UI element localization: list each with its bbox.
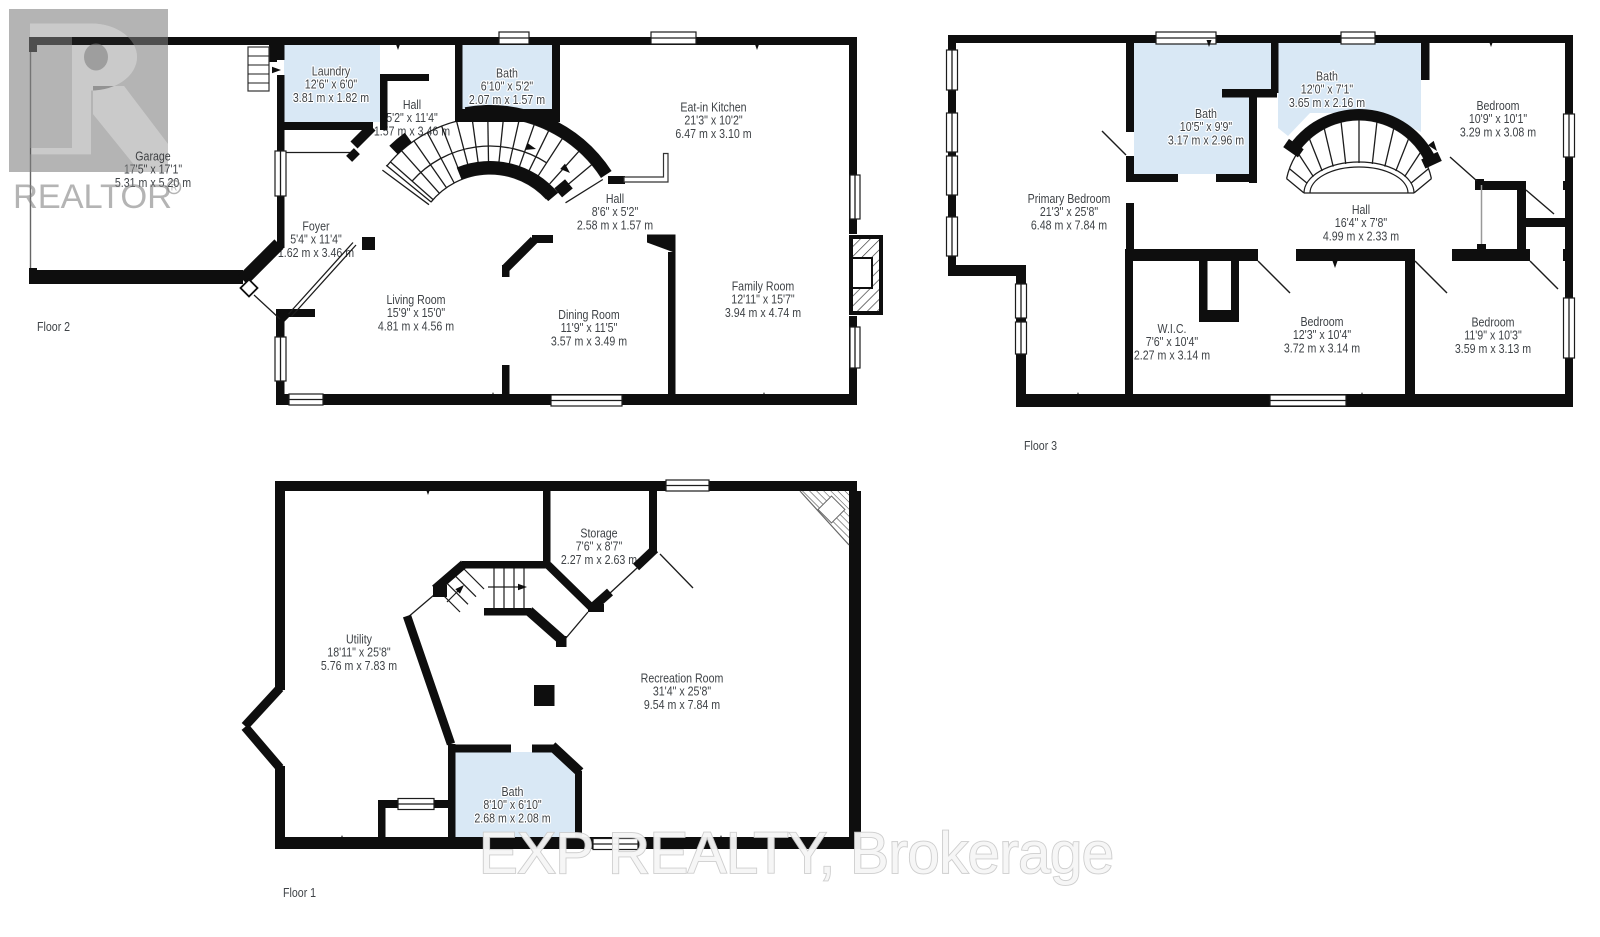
svg-text:R: R	[171, 183, 178, 193]
svg-text:Living Room15'9" x 15'0"4.81 m: Living Room15'9" x 15'0"4.81 m x 4.56 m	[378, 293, 454, 334]
svg-text:Floor 2: Floor 2	[37, 320, 70, 334]
svg-text:Floor 1: Floor 1	[283, 886, 316, 900]
svg-text:Primary Bedroom21'3" x 25'8"6.: Primary Bedroom21'3" x 25'8"6.48 m x 7.8…	[1028, 192, 1111, 233]
svg-text:Floor 3: Floor 3	[1024, 439, 1057, 453]
svg-text:Recreation Room31'4" x 25'8"9.: Recreation Room31'4" x 25'8"9.54 m x 7.8…	[641, 671, 724, 712]
svg-text:Eat-in Kitchen21'3" x 10'2"6.4: Eat-in Kitchen21'3" x 10'2"6.47 m x 3.10…	[675, 100, 751, 141]
svg-text:REALTOR: REALTOR	[13, 178, 172, 216]
svg-text:Dining Room11'9" x 11'5"3.57 m: Dining Room11'9" x 11'5"3.57 m x 3.49 m	[551, 308, 627, 349]
svg-text:EXP REALTY, Brokerage: EXP REALTY, Brokerage	[479, 821, 1114, 886]
svg-text:Family Room12'11" x 15'7"3.94: Family Room12'11" x 15'7"3.94 m x 4.74 m	[725, 279, 801, 320]
